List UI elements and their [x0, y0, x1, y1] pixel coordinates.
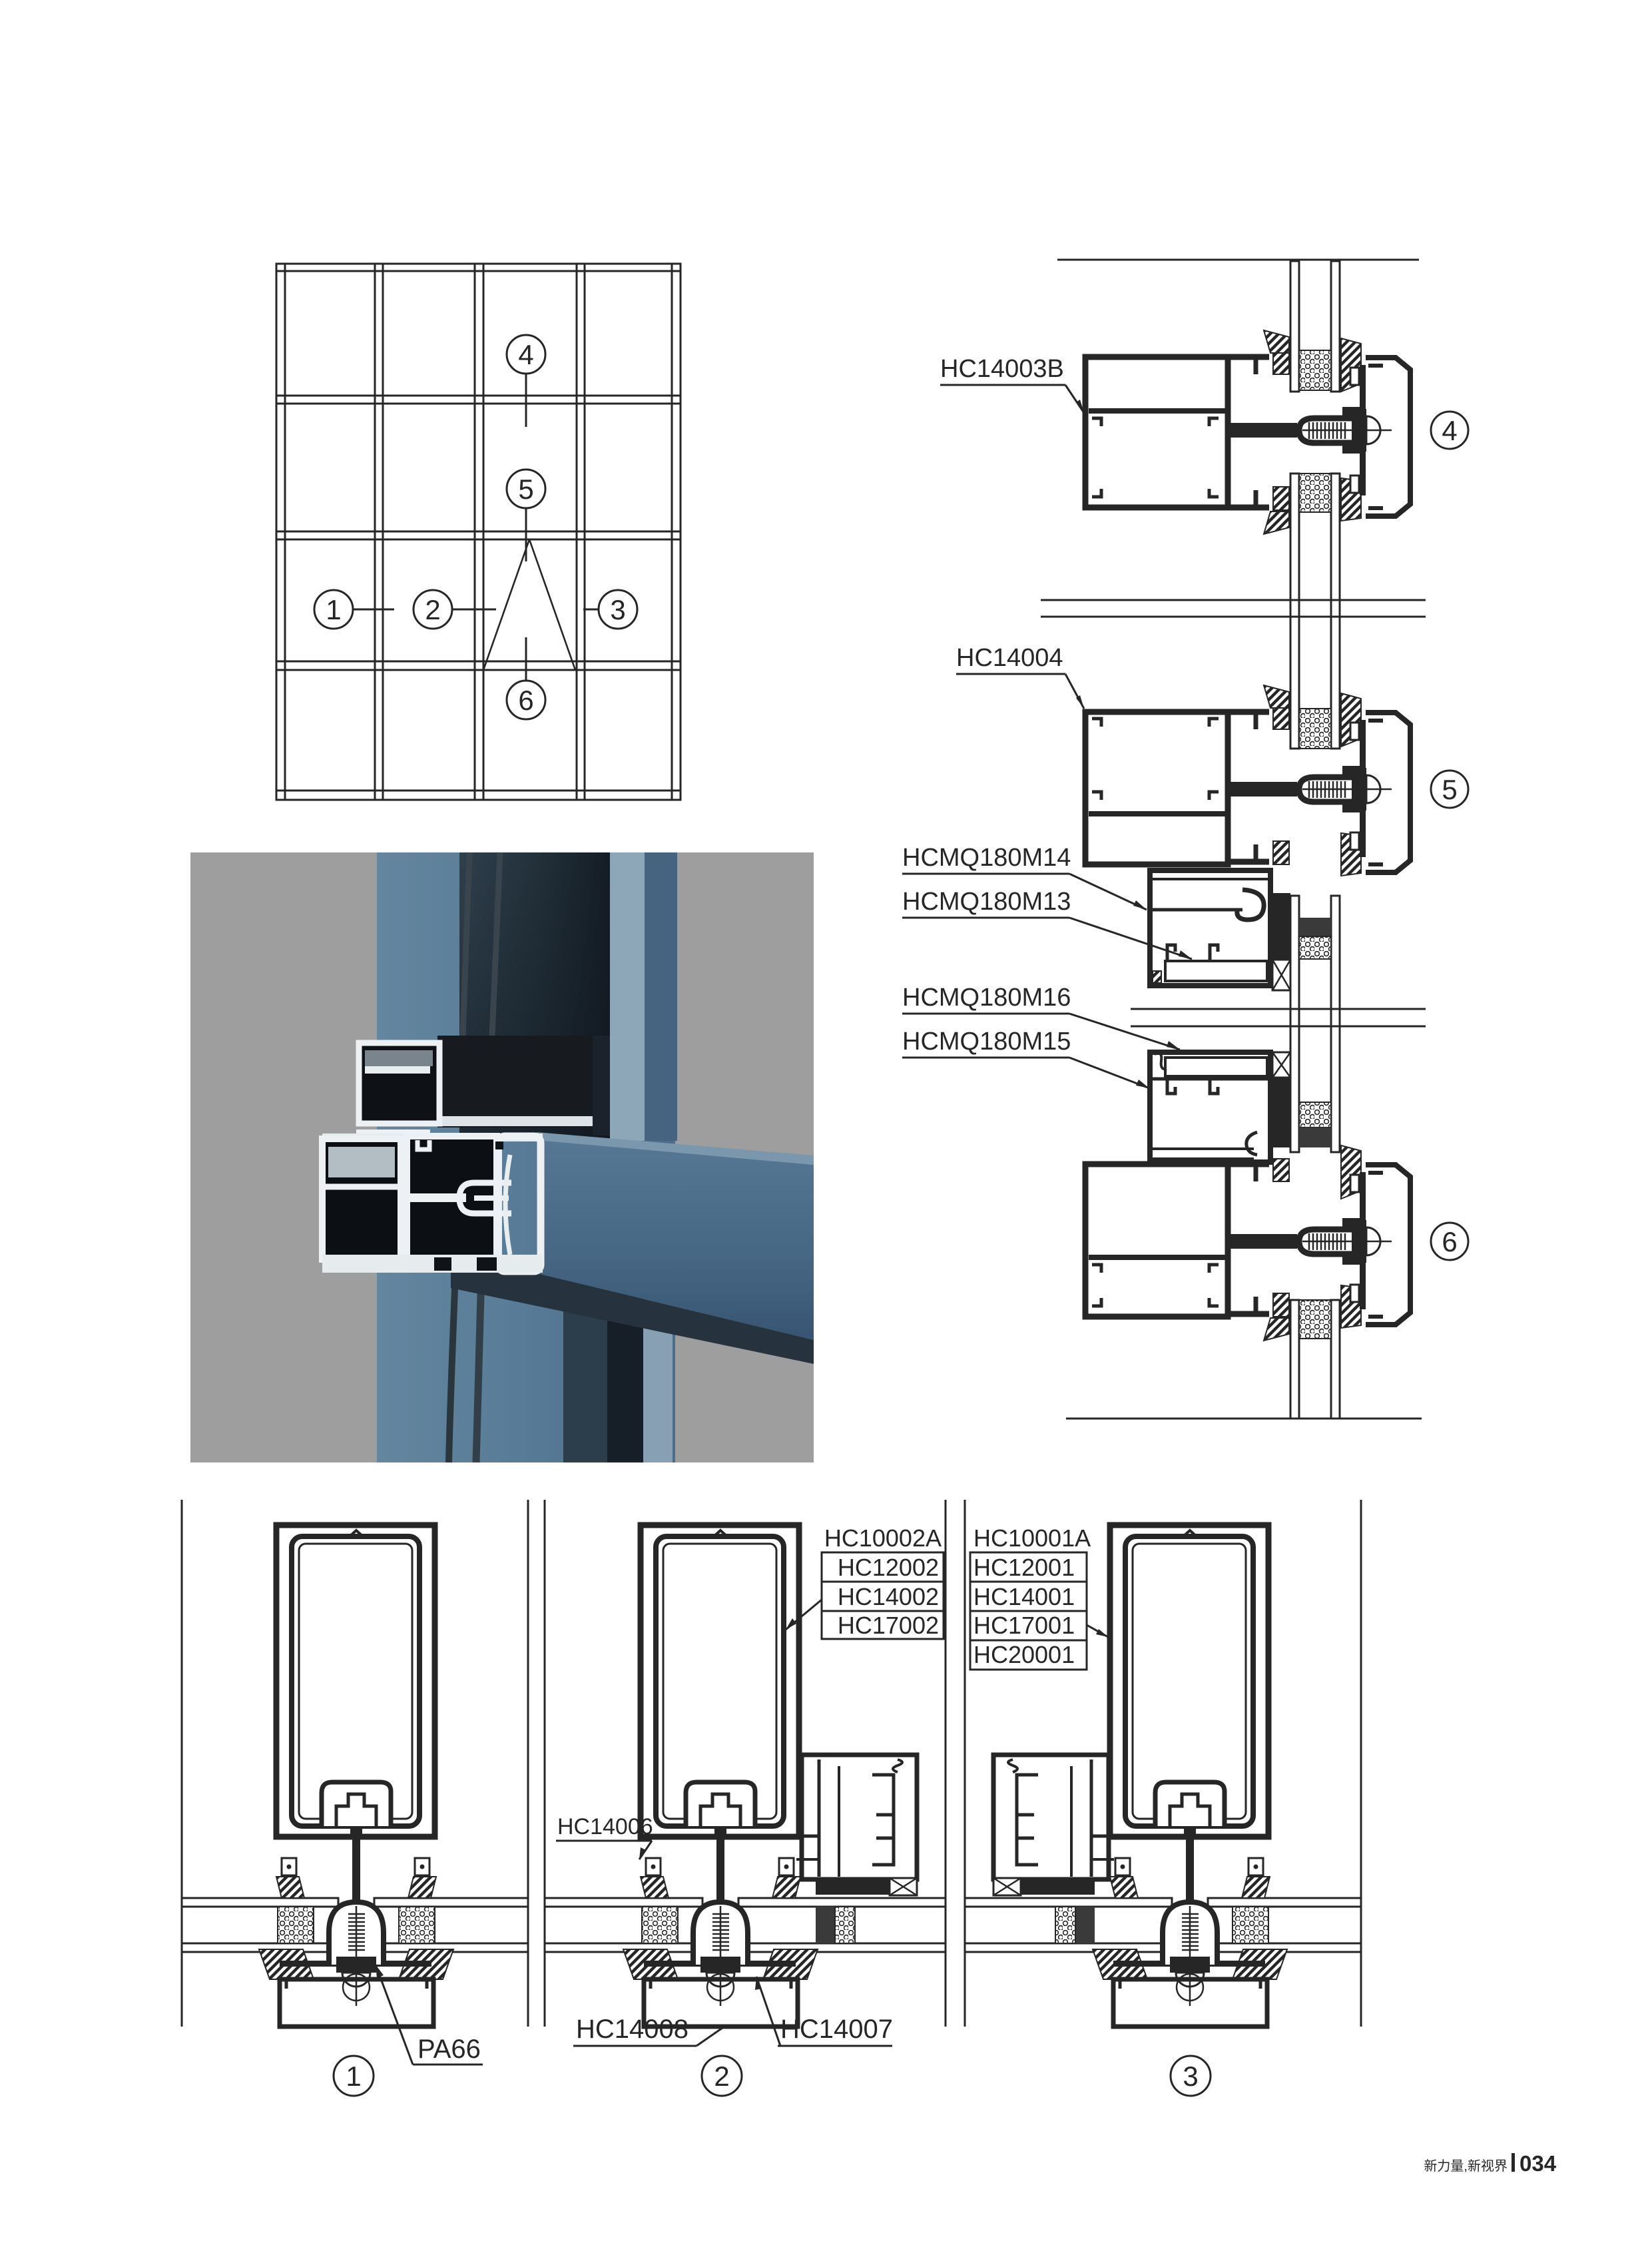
svg-text:HCMQ180M16: HCMQ180M16	[902, 984, 1071, 1012]
svg-text:HC17001: HC17001	[973, 1612, 1075, 1639]
svg-text:3: 3	[1183, 2061, 1198, 2092]
svg-text:HC10001A: HC10001A	[973, 1524, 1091, 1552]
svg-text:HC10002A: HC10002A	[824, 1524, 942, 1552]
svg-text:HC14004: HC14004	[956, 644, 1063, 672]
svg-text:6: 6	[1442, 1226, 1457, 1257]
svg-text:HC14008: HC14008	[576, 2015, 688, 2044]
svg-text:4: 4	[518, 339, 533, 370]
svg-text:HC14002: HC14002	[838, 1583, 939, 1610]
svg-text:PA66: PA66	[417, 2035, 481, 2064]
svg-text:HC20001: HC20001	[973, 1641, 1075, 1668]
svg-text:5: 5	[518, 474, 533, 505]
svg-text:HC12002: HC12002	[838, 1554, 939, 1581]
svg-text:HC14006: HC14006	[557, 1814, 653, 1839]
svg-text:HC12001: HC12001	[973, 1554, 1075, 1581]
svg-text:1: 1	[326, 594, 341, 625]
svg-text:2: 2	[425, 594, 440, 625]
svg-text:HC17002: HC17002	[838, 1612, 939, 1639]
svg-text:HCMQ180M13: HCMQ180M13	[902, 888, 1071, 916]
svg-text:3: 3	[610, 594, 625, 625]
svg-text:HC14007: HC14007	[780, 2015, 893, 2044]
svg-text:HC14001: HC14001	[973, 1583, 1075, 1610]
svg-text:1: 1	[346, 2061, 361, 2092]
svg-text:4: 4	[1442, 415, 1457, 446]
svg-text:HC14003B: HC14003B	[940, 355, 1064, 383]
svg-text:034: 034	[1519, 2151, 1557, 2176]
svg-text:HCMQ180M15: HCMQ180M15	[902, 1028, 1071, 1056]
svg-text:5: 5	[1442, 774, 1457, 805]
svg-text:HCMQ180M14: HCMQ180M14	[902, 844, 1071, 872]
svg-text:新力量,新视界: 新力量,新视界	[1424, 2158, 1508, 2174]
svg-text:2: 2	[714, 2061, 729, 2092]
svg-text:6: 6	[518, 685, 533, 716]
